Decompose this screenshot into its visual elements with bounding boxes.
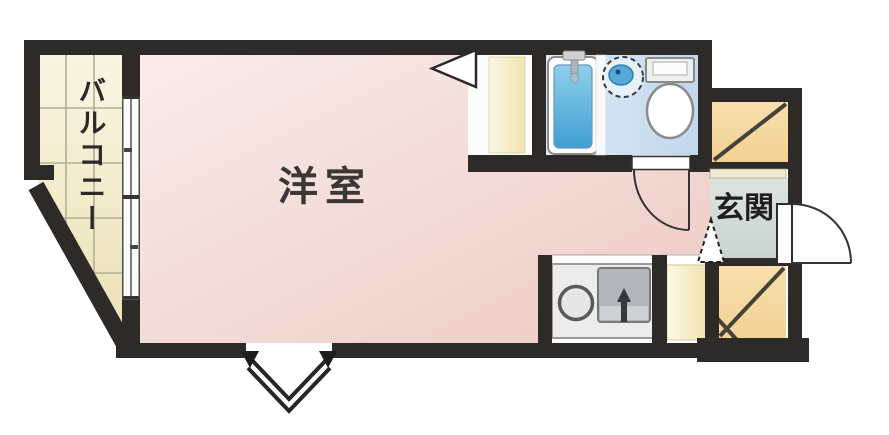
wall-column-closet-divider: [705, 258, 719, 342]
wall-left-notch: [24, 165, 54, 180]
washbasin-drain: [616, 70, 621, 75]
chevron-outer: [248, 356, 330, 399]
chevron-inner: [248, 368, 330, 411]
toilet-tank-lid: [653, 62, 687, 75]
sliding-window-icon: [123, 96, 139, 299]
window-sash-mark-upper: [124, 148, 132, 152]
storage-column: [667, 265, 707, 340]
wall-kitchen-right: [652, 255, 667, 343]
wall-closet-bath-divider: [532, 55, 546, 155]
bathtub-faucet-icon: [563, 51, 585, 60]
wall-entrance-right-lower: [788, 263, 802, 352]
wall-left: [24, 40, 40, 180]
wall-closet-genkan-divider: [710, 162, 788, 169]
entrance-label: 玄関: [714, 193, 774, 225]
western-room-label: 洋室: [278, 166, 372, 208]
wall-bath-bottom-left: [468, 155, 632, 172]
toilet-icon: [647, 84, 693, 138]
wall-bottom-right: [332, 343, 700, 358]
chevron-window-icon: [241, 351, 337, 411]
stove-burner-icon: [560, 287, 593, 320]
bathtub-faucet-stem: [571, 60, 578, 74]
kitchen-faucet-stem: [621, 298, 627, 322]
window-mullion-bottom: [123, 296, 139, 299]
window-sash-mark-lower: [130, 245, 138, 249]
wall-entrance-right-upper: [788, 88, 802, 205]
entrance-door-swing-icon: [777, 204, 851, 264]
wall-bath-right: [698, 40, 712, 172]
window-mullion-top: [123, 96, 139, 99]
bathroom-door-leaf: [632, 157, 690, 170]
entrance-door-arc: [792, 204, 851, 263]
entrance-upper-door-strip: [710, 169, 786, 178]
bathtub-faucet-knob: [571, 73, 579, 83]
wall-top: [24, 40, 712, 55]
closet-nook-interior: [489, 57, 525, 153]
balcony-label: バルコニー: [76, 76, 105, 236]
floor-plan: 洋室 バルコニー 玄関: [0, 0, 889, 435]
entrance-door-leaf: [777, 204, 792, 264]
window-mullion-middle: [123, 195, 139, 199]
wall-entrance-top: [698, 88, 802, 102]
washbasin-bowl: [609, 65, 633, 85]
wall-kitchen-left: [538, 255, 552, 343]
